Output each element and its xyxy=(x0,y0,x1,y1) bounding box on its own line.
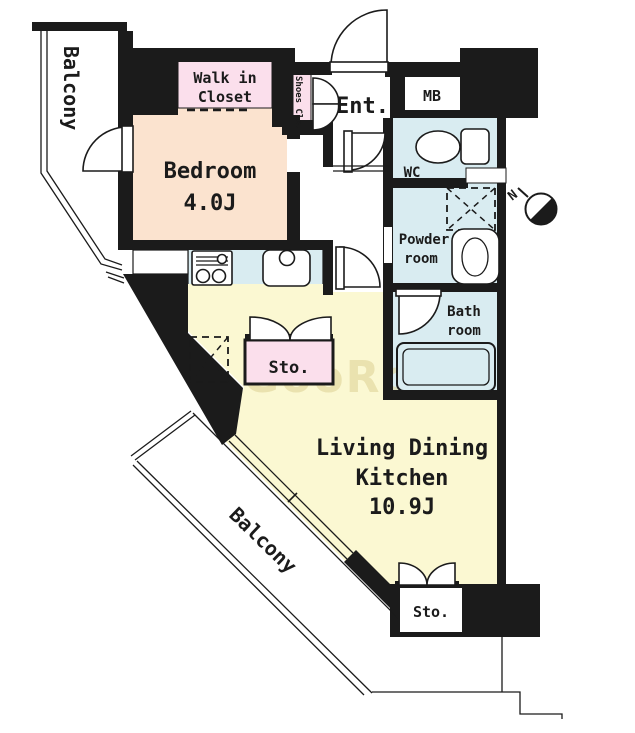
walk-in-closet-label-1: Walk in xyxy=(193,69,256,87)
bath-room-label-2: room xyxy=(447,323,481,339)
powder-door-opening xyxy=(384,227,392,263)
bedroom-label: Bedroom xyxy=(164,159,257,184)
bedroom-size: 4.0J xyxy=(184,191,237,216)
ldk-size: 10.9J xyxy=(369,495,435,520)
storage-lower-label: Sto. xyxy=(413,603,449,621)
ldk-door-arc xyxy=(336,247,380,289)
storage-upper-label: Sto. xyxy=(269,358,310,378)
powder-room-label-1: Powder xyxy=(399,232,450,248)
kitchen-window xyxy=(133,250,188,274)
bedroom-balcony-door-arc xyxy=(83,126,133,172)
washbasin-icon xyxy=(452,229,499,284)
toilet-icon xyxy=(416,129,489,164)
wc-window xyxy=(466,168,506,183)
ldk-label-1: Living Dining xyxy=(316,436,488,461)
stove-icon xyxy=(192,251,232,285)
compass-icon: N xyxy=(505,187,556,224)
entrance-label: Ent. xyxy=(336,94,389,119)
balcony-top-label: Balcony xyxy=(59,46,83,130)
walk-in-closet-label-2: Closet xyxy=(198,88,252,106)
floor-plan-drawing: GooRooM xyxy=(0,0,635,733)
ldk-label-2: Kitchen xyxy=(356,466,449,491)
compass-north-label: N xyxy=(505,187,521,204)
shoes-closet-label: Shoes Clo. xyxy=(293,76,303,130)
powder-room-label-2: room xyxy=(404,251,438,267)
entrance-door-arc xyxy=(330,10,388,72)
boundary-line xyxy=(372,637,562,719)
wc-label: WC xyxy=(404,165,421,181)
meter-box-label: MB xyxy=(423,87,441,105)
floor-plan: GooRooM xyxy=(0,0,635,733)
bath-room-label-1: Bath xyxy=(447,304,481,320)
bathtub-icon xyxy=(397,343,495,391)
sink-icon xyxy=(263,250,310,286)
